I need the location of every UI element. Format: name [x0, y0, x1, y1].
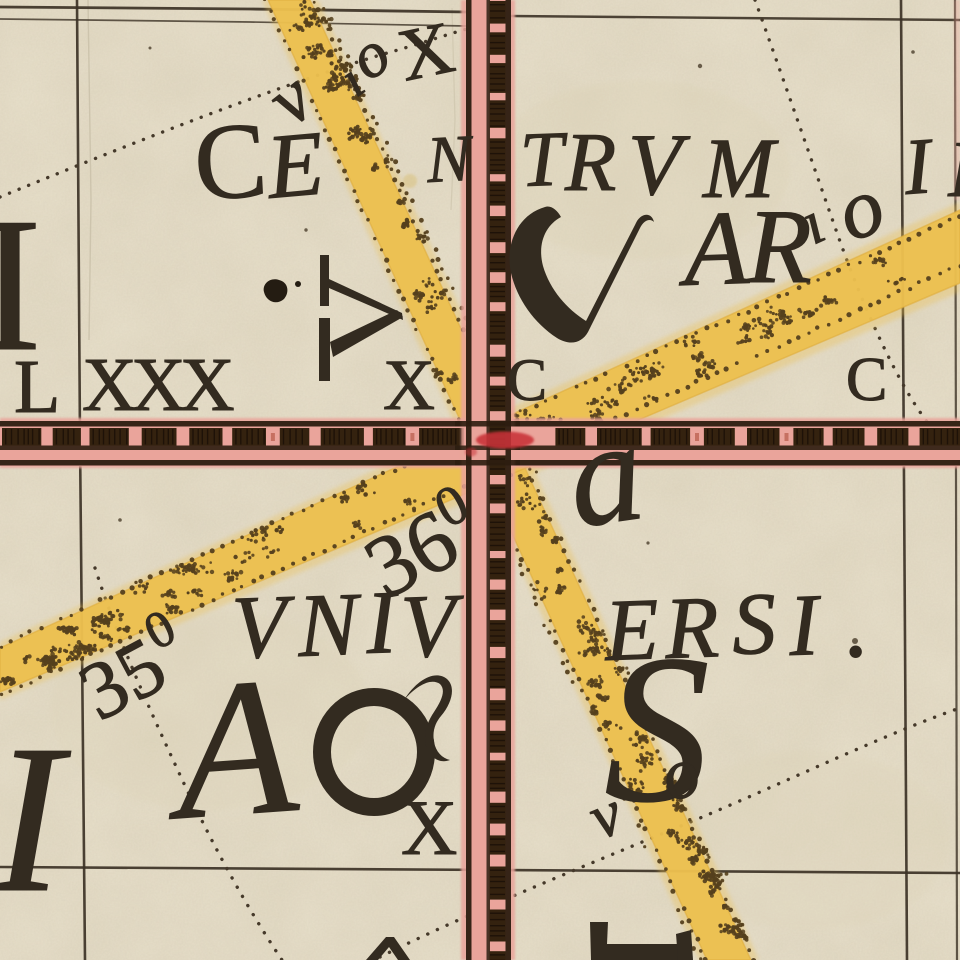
- svg-text:I: I: [0, 701, 71, 936]
- svg-text:XXX: XXX: [82, 343, 234, 427]
- svg-text:C: C: [846, 346, 887, 414]
- svg-text:N: N: [424, 122, 477, 197]
- svg-text:T: T: [519, 114, 570, 203]
- svg-text:S: S: [730, 576, 777, 674]
- svg-text:X: X: [401, 784, 457, 871]
- svg-text:A: A: [676, 189, 752, 308]
- svg-text:.: .: [846, 570, 870, 677]
- svg-text:I: I: [0, 178, 42, 391]
- svg-text:X: X: [383, 345, 435, 425]
- svg-text:C: C: [507, 347, 547, 413]
- svg-text:E: E: [261, 111, 328, 218]
- svg-text:I: I: [947, 126, 960, 214]
- svg-text:R: R: [564, 116, 616, 209]
- svg-text:N: N: [295, 575, 364, 676]
- svg-text:C: C: [190, 100, 270, 224]
